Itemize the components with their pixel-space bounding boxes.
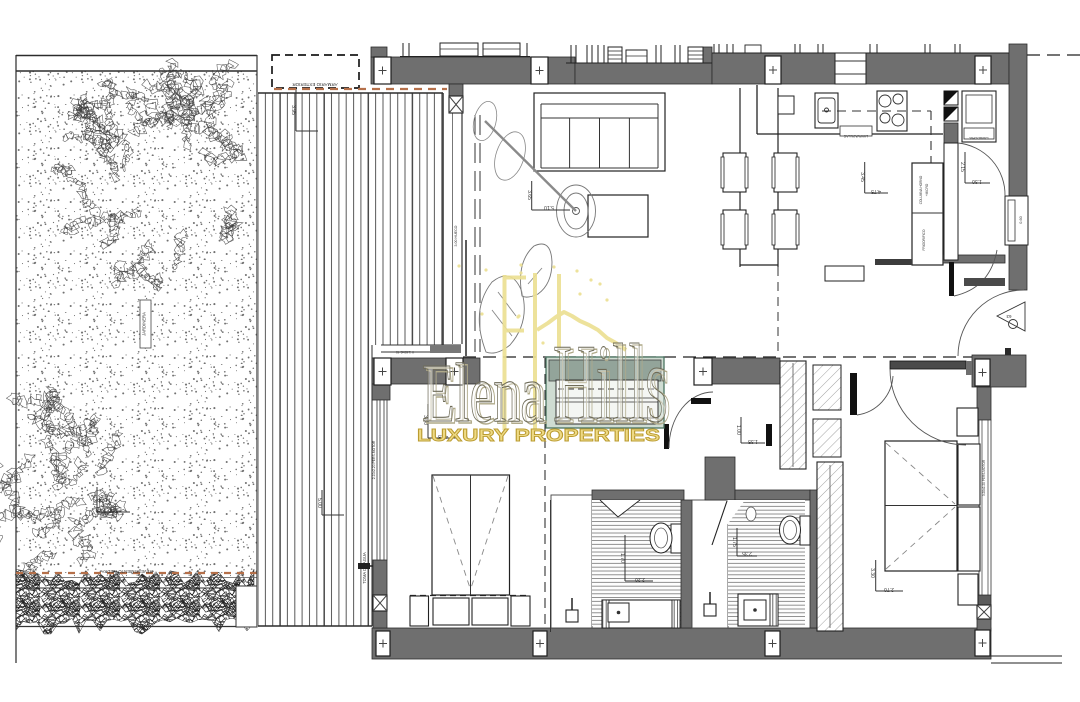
svg-text:3.30: 3.30 (869, 568, 875, 578)
svg-text:5.10: 5.10 (544, 204, 554, 210)
svg-text:6.30: 6.30 (91, 495, 97, 505)
svg-text:ARMARIO EXTERIOR: ARMARIO EXTERIOR (292, 82, 338, 87)
svg-text:1.70: 1.70 (619, 553, 625, 563)
svg-text:LAVADORA: LAVADORA (969, 136, 989, 140)
svg-text:3.65: 3.65 (526, 190, 532, 200)
svg-text:3.00 HUECO: 3.00 HUECO (454, 225, 458, 246)
svg-text:1.30: 1.30 (972, 178, 982, 184)
svg-text:2.35: 2.35 (742, 550, 752, 556)
svg-text:5.00: 5.00 (108, 507, 118, 513)
svg-text:4.75: 4.75 (871, 188, 881, 194)
svg-text:2.70: 2.70 (884, 586, 894, 592)
svg-text:FRIGORIFICO: FRIGORIFICO (922, 229, 926, 250)
svg-text:COLUMNA HORNO: COLUMNA HORNO (919, 175, 923, 204)
svg-text:3.95: 3.95 (290, 105, 296, 115)
svg-text:5.00: 5.00 (316, 498, 322, 508)
svg-text:REVESTIMIENTO PIEDRA: REVESTIMIENTO PIEDRA (101, 569, 152, 574)
svg-text:1.00: 1.00 (735, 425, 741, 435)
svg-text:2.15: 2.15 (959, 162, 965, 172)
svg-text:LAVAVAJILLAS: LAVAVAJILLAS (843, 134, 868, 138)
svg-text:1.75: 1.75 (731, 537, 737, 547)
svg-text:3.20x2.20 PERS.MOTOR: 3.20x2.20 PERS.MOTOR (982, 459, 986, 496)
svg-text:1.35: 1.35 (748, 438, 758, 444)
svg-text:V 1.60x0.40: V 1.60x0.40 (396, 350, 414, 354)
svg-text:2.20: 2.20 (635, 576, 645, 582)
svg-text:JARDINERA: JARDINERA (142, 312, 147, 336)
svg-text:+MICRO: +MICRO (925, 183, 929, 196)
svg-text:LUXURY PROPERTIES: LUXURY PROPERTIES (417, 425, 660, 445)
svg-text:63: 63 (1006, 314, 1012, 319)
svg-text:3.45: 3.45 (859, 172, 865, 182)
svg-text:0.60: 0.60 (1019, 216, 1023, 223)
svg-text:2.10x2.20 PERS.MOTOR: 2.10x2.20 PERS.MOTOR (372, 440, 376, 479)
